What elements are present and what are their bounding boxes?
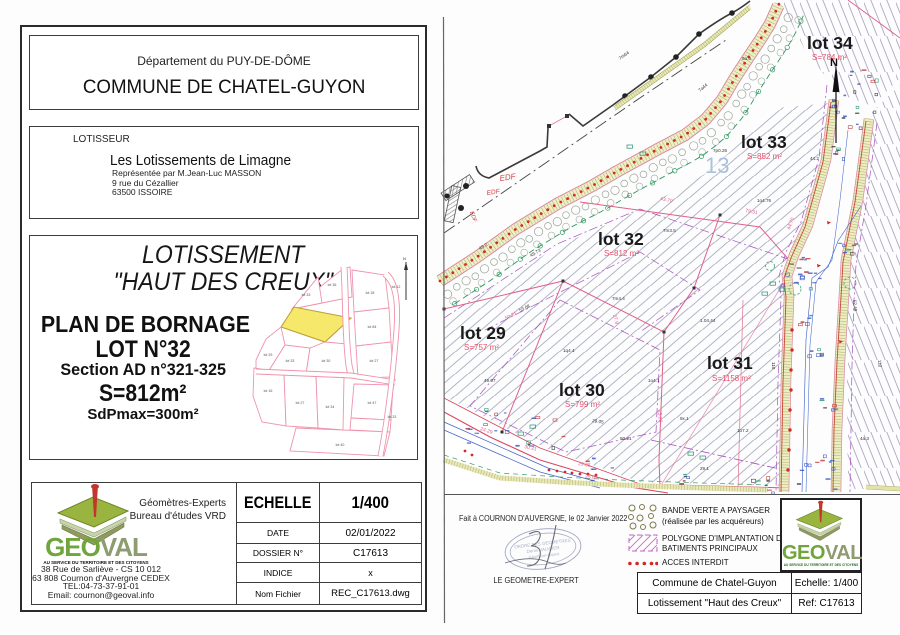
svg-text:25.29: 25.29 (656, 410, 663, 423)
svg-text:110: 110 (877, 360, 883, 368)
svg-text:9a.5: 9a.5 (742, 56, 751, 61)
svg-text:29.1: 29.1 (700, 466, 709, 471)
svg-text:49.07: 49.07 (484, 378, 496, 383)
svg-text:7m3.5: 7m3.5 (663, 228, 676, 233)
svg-text:S=1158 m²: S=1158 m² (712, 374, 751, 383)
svg-text:110: 110 (771, 362, 776, 370)
svg-text:44.2: 44.2 (810, 156, 819, 161)
svg-text:4a.3: 4a.3 (860, 436, 869, 441)
svg-text:S=799 m²: S=799 m² (565, 400, 600, 409)
svg-text:lot 29: lot 29 (460, 323, 506, 343)
svg-text:lot 31: lot 31 (707, 353, 753, 373)
svg-text:EDF: EDF (468, 211, 478, 224)
svg-text:7m4.4: 7m4.4 (612, 296, 625, 301)
svg-text:N: N (830, 57, 838, 69)
svg-text:52.48: 52.48 (852, 300, 858, 312)
svg-text:1q4.4: 1q4.4 (563, 348, 575, 353)
svg-text:lot 32: lot 32 (598, 229, 644, 249)
svg-text:S=852 m²: S=852 m² (747, 152, 782, 161)
svg-text:1o4.1: 1o4.1 (648, 378, 660, 383)
svg-text:1o4.76: 1o4.76 (757, 198, 771, 203)
svg-text:EDF: EDF (486, 188, 501, 197)
svg-text:13: 13 (705, 153, 729, 178)
svg-text:lot 34: lot 34 (807, 33, 853, 53)
svg-text:EDF: EDF (499, 172, 517, 183)
svg-text:7a44: 7a44 (697, 82, 708, 93)
svg-text:9x.1: 9x.1 (680, 416, 689, 421)
svg-text:lot 33: lot 33 (741, 132, 787, 152)
svg-text:lot 30: lot 30 (559, 380, 605, 400)
svg-text:1.04,44: 1.04,44 (700, 318, 716, 323)
svg-text:7m64: 7m64 (618, 50, 631, 61)
svg-text:S=812 m²: S=812 m² (604, 249, 639, 258)
svg-text:S=757 m²: S=757 m² (464, 343, 499, 352)
svg-text:49.73: 49.73 (529, 248, 542, 258)
svg-text:50.21: 50.21 (620, 436, 632, 441)
svg-text:1o7.2: 1o7.2 (737, 428, 749, 433)
